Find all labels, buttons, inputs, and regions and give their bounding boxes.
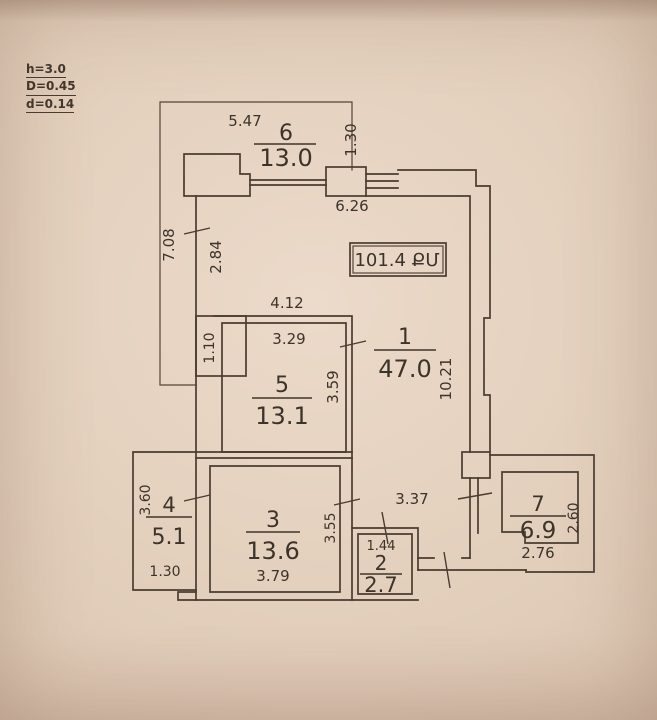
total-area-label: 101.4 ՔՄ: [354, 250, 439, 271]
dim-1-10: 1.10: [202, 332, 218, 363]
room-4-number: 4: [162, 493, 175, 517]
dim-10-21: 10.21: [437, 358, 455, 401]
window-triple-lines: [366, 174, 398, 188]
balcony-glazing-wall: [250, 180, 326, 185]
dim-1-30-bottom: 1.30: [149, 564, 180, 580]
room-1-number: 1: [398, 325, 412, 350]
floor-plan-photo: h=3.0 D=0.45 d=0.14: [0, 0, 657, 720]
dim-2-84: 2.84: [207, 240, 225, 273]
dim-3-37: 3.37: [395, 490, 428, 508]
room-5-area: 13.1: [255, 402, 308, 430]
outer-wall-right: [398, 170, 490, 452]
room-2-number: 2: [375, 551, 388, 575]
room-5-number: 5: [275, 373, 289, 398]
room-1-area: 47.0: [378, 355, 431, 383]
dim-3-60: 3.60: [138, 484, 154, 515]
room-2-area: 2.7: [364, 573, 397, 597]
room-7-number: 7: [531, 492, 544, 516]
dim-4-12: 4.12: [270, 294, 303, 312]
room-7-area: 6.9: [520, 518, 557, 544]
corridor-bottom-wall: [418, 558, 526, 570]
floor-plan-drawing: 5.47 6 13.0 1.30 6.26 101.4 ՔՄ 7.08 2.84…: [0, 0, 657, 720]
room-3-area: 13.6: [246, 537, 299, 565]
dim-6-26: 6.26: [335, 197, 368, 215]
pillar-top-left: [184, 154, 250, 196]
room-6-area: 13.0: [259, 144, 312, 172]
dim-3-59: 3.59: [324, 370, 342, 403]
divider-wall-5-3: [196, 452, 352, 458]
window-block: [326, 167, 366, 196]
room-4-area: 5.1: [152, 525, 187, 550]
dim-5-47: 5.47: [228, 112, 261, 130]
dim-2-60: 2.60: [566, 502, 582, 533]
dim-7-08: 7.08: [160, 228, 178, 261]
dim-1-30-top: 1.30: [342, 123, 360, 156]
dim-2-76: 2.76: [521, 544, 554, 562]
room-3-number: 3: [266, 508, 280, 533]
room-6-number: 6: [279, 121, 293, 146]
dim-3-79: 3.79: [256, 567, 289, 585]
inner-wall-room1: [366, 196, 470, 452]
dim-3-55: 3.55: [323, 512, 339, 543]
dim-3-29: 3.29: [272, 330, 305, 348]
pillar-right: [462, 452, 490, 478]
wall-1-7: [470, 478, 478, 558]
